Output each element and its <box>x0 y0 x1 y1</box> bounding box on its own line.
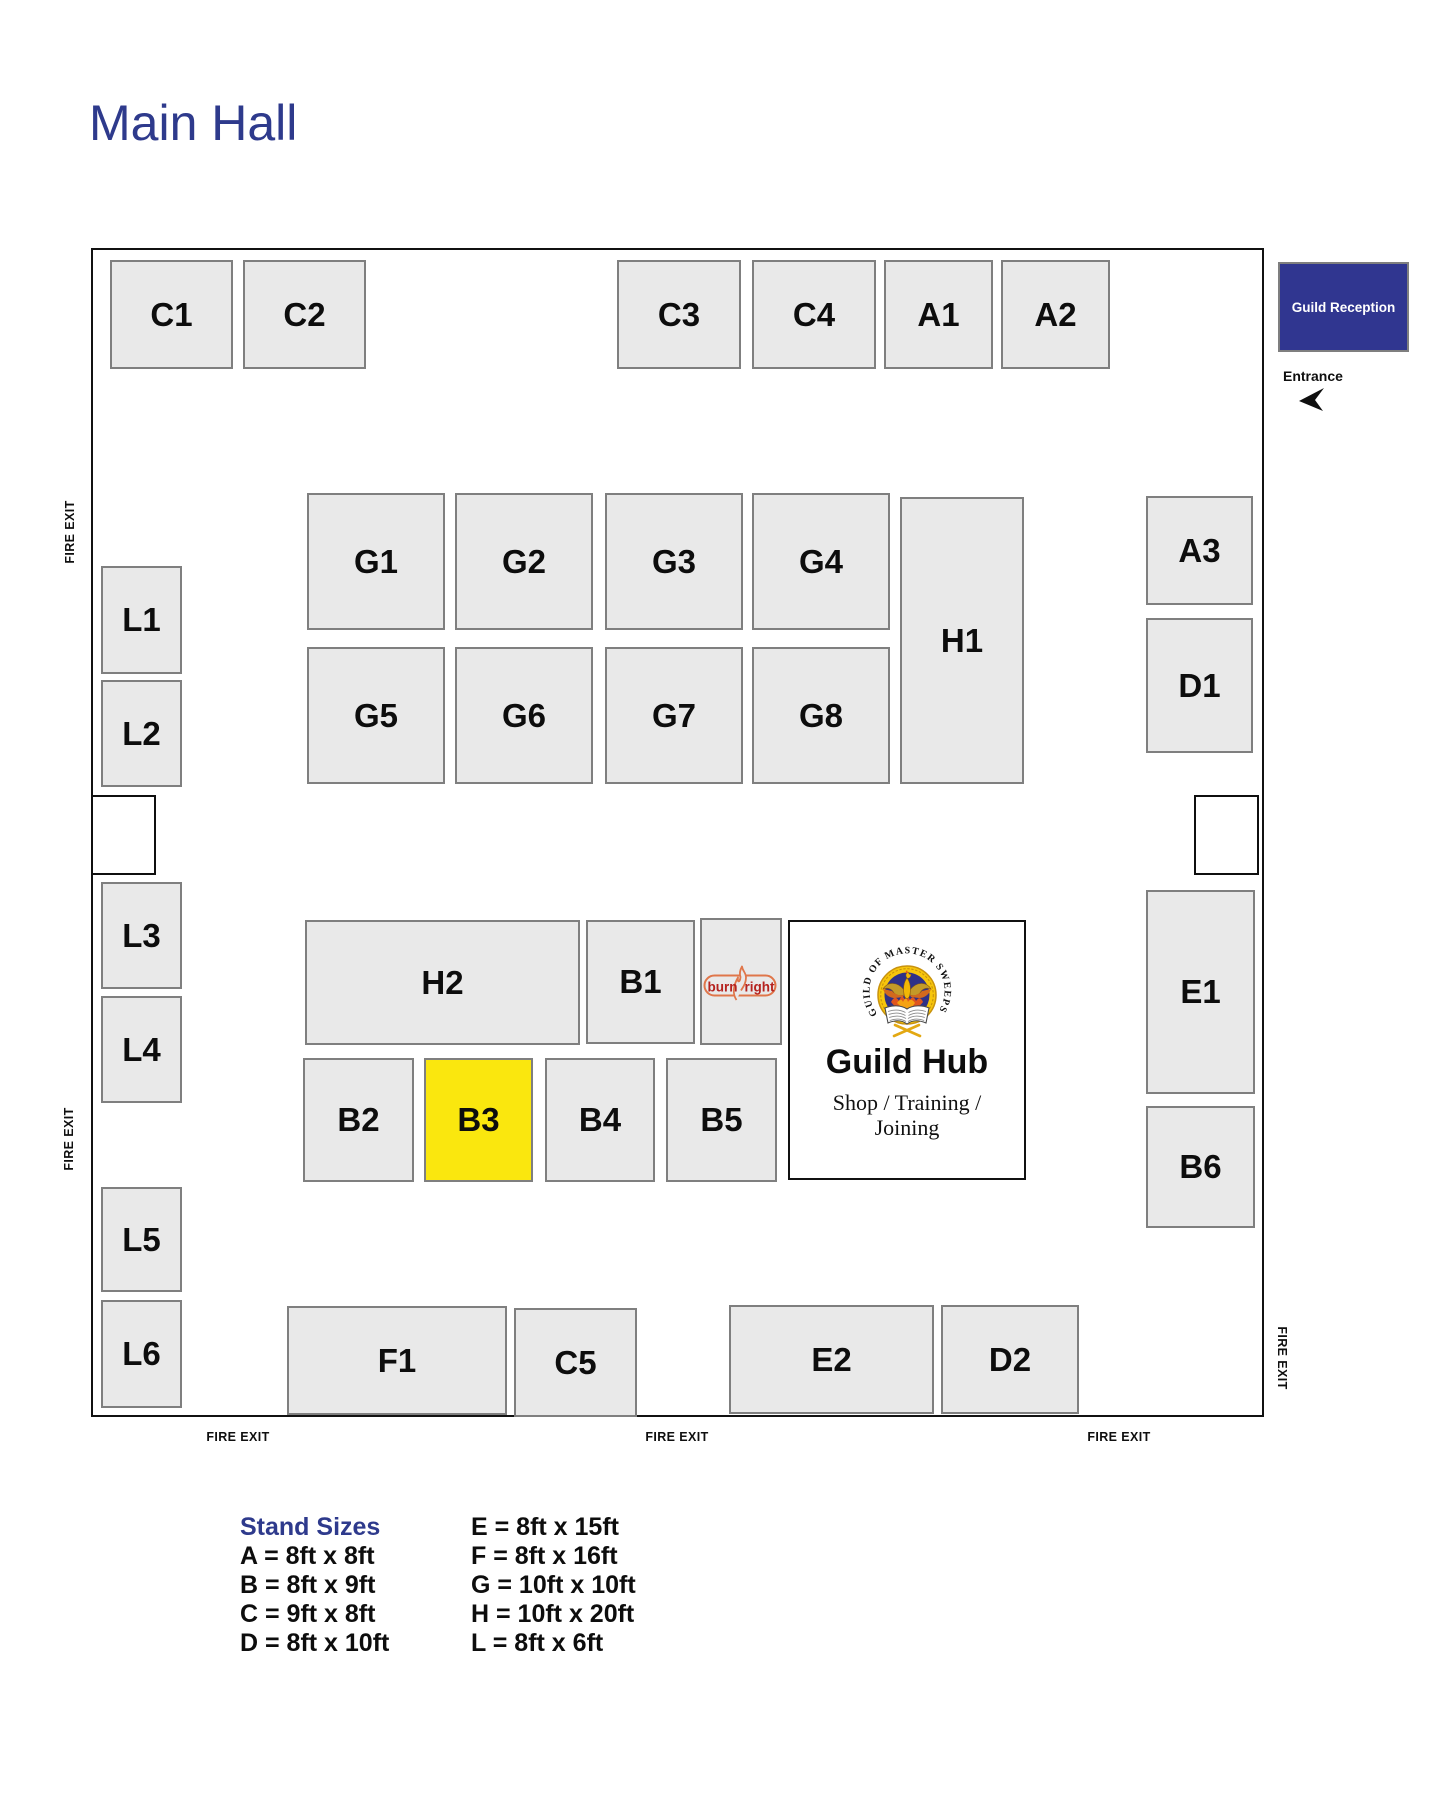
svg-text:burn: burn <box>708 980 738 995</box>
svg-text:right: right <box>745 980 775 995</box>
